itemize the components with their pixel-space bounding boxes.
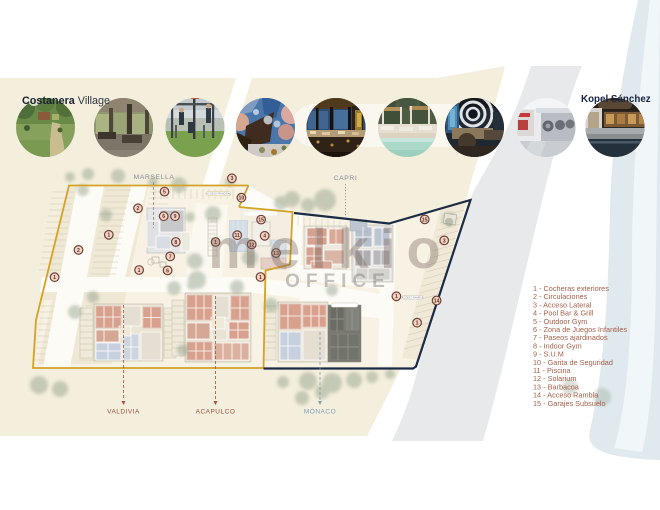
svg-text:MARSELLA: MARSELLA [133,174,174,181]
svg-text:Kopel Sánchez: Kopel Sánchez [581,94,651,105]
svg-text:CAPRI: CAPRI [334,175,358,182]
svg-text:ACCESO PRINCIPAL: ACCESO PRINCIPAL [206,193,231,196]
svg-text:3: 3 [230,176,233,182]
svg-text:1: 1 [107,233,110,239]
svg-text:15 - Garajes Subsuelo: 15 - Garajes Subsuelo [533,399,606,408]
svg-text:ACCESO RAMBLA: ACCESO RAMBLA [402,297,424,300]
svg-text:ACAPULCO: ACAPULCO [196,409,236,416]
svg-text:2: 2 [137,206,140,212]
svg-text:8: 8 [174,240,177,246]
svg-text:Costanera Village: Costanera Village [22,95,110,107]
svg-text:6: 6 [166,268,169,274]
svg-text:VALDIVIA: VALDIVIA [107,409,140,416]
svg-text:6: 6 [162,214,165,220]
svg-text:7: 7 [169,254,172,260]
svg-text:1: 1 [138,268,141,274]
svg-text:1: 1 [395,294,398,300]
svg-text:14: 14 [434,298,440,304]
svg-text:2: 2 [77,248,80,254]
svg-text:1: 1 [416,321,419,327]
svg-text:10: 10 [239,196,245,202]
svg-text:MÓNACO: MÓNACO [304,407,336,416]
svg-text:1: 1 [53,275,56,281]
svg-text:5: 5 [163,190,166,196]
svg-text:9: 9 [174,214,177,220]
svg-text:OFFICE: OFFICE [285,271,391,292]
